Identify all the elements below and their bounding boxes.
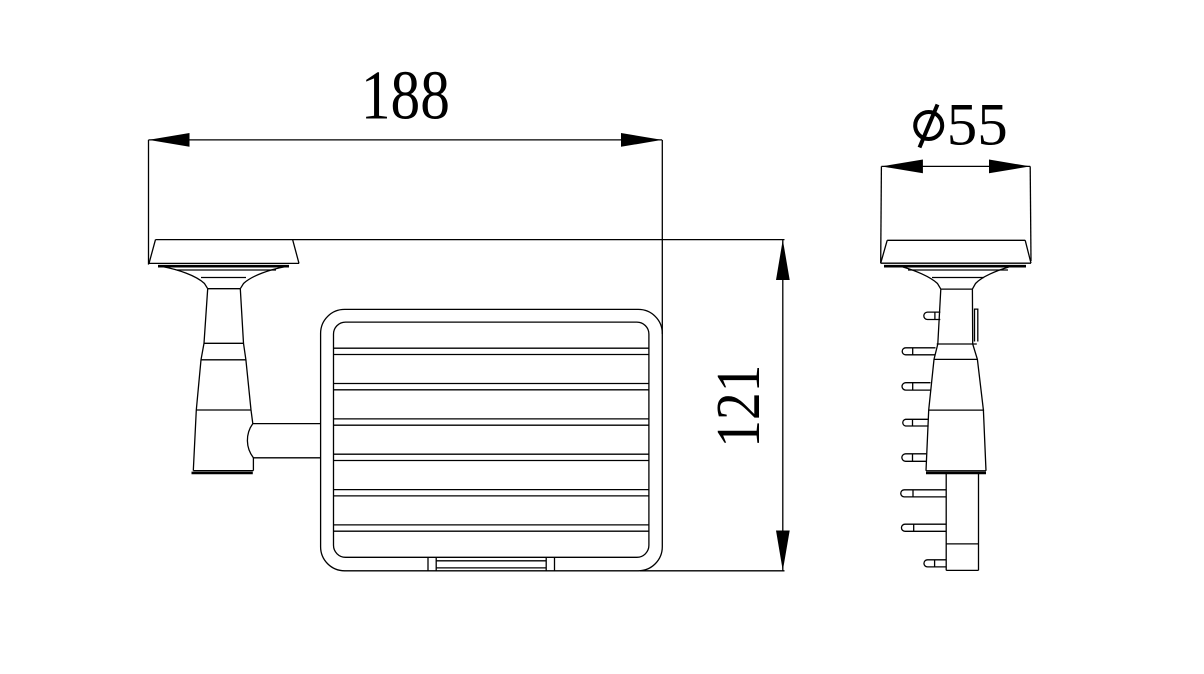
svg-text:55: 55 (947, 91, 1008, 157)
svg-text:121: 121 (705, 365, 773, 448)
svg-text:188: 188 (361, 57, 450, 134)
